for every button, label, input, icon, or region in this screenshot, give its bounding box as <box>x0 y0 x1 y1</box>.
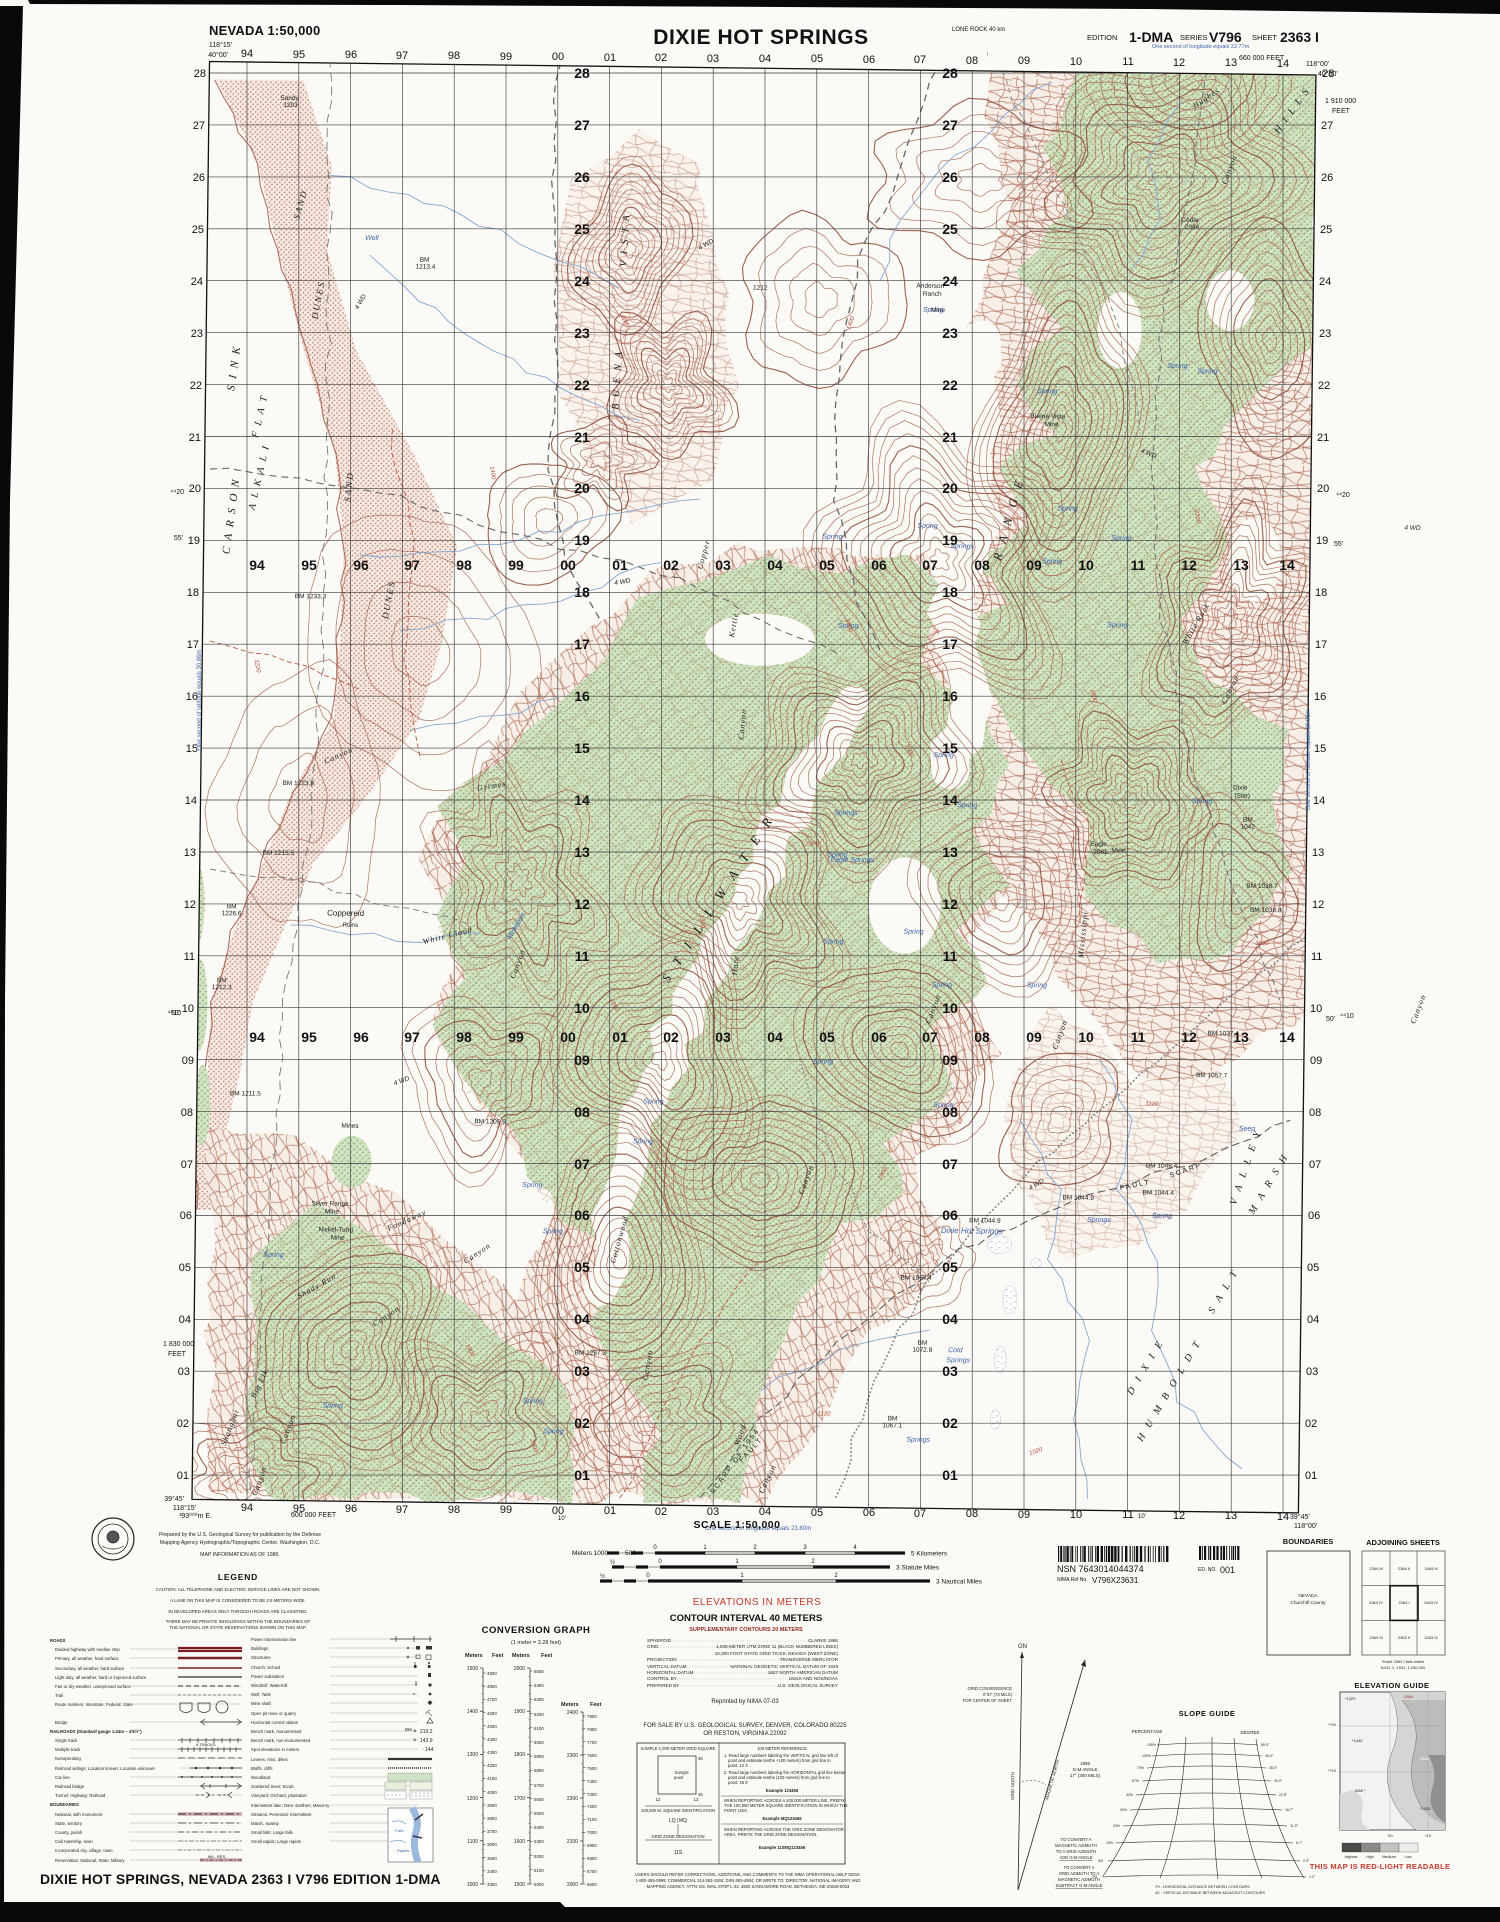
svg-text:Mine: Mine <box>931 307 946 314</box>
svg-text:13: 13 <box>184 847 196 859</box>
svg-text:7700: 7700 <box>587 1740 597 1745</box>
svg-text:Meters: Meters <box>465 1653 483 1659</box>
svg-text:Spring: Spring <box>932 982 952 989</box>
svg-text:14: 14 <box>574 792 590 808</box>
svg-text:Rapids: Rapids <box>397 1848 409 1853</box>
svg-text:02: 02 <box>177 1418 189 1430</box>
svg-text:04: 04 <box>179 1314 191 1326</box>
svg-text:Spring: Spring <box>1107 622 1127 629</box>
svg-text:97: 97 <box>404 1029 420 1045</box>
svg-text:⁴⁴20: ⁴⁴20 <box>170 489 184 496</box>
svg-text:HORIZONTAL DATUM: HORIZONTAL DATUM <box>647 1670 694 1675</box>
svg-text:18: 18 <box>187 587 199 599</box>
svg-text:One second of latitude equals: One second of latitude equals 30.86m <box>1306 709 1312 810</box>
svg-text:Multiple track: Multiple track <box>55 1747 81 1752</box>
svg-text:4000: 4000 <box>487 1790 497 1795</box>
svg-text:02: 02 <box>1305 1418 1317 1430</box>
svg-text:1213.4: 1213.4 <box>416 264 436 271</box>
svg-text:DIXIE HOT SPRINGS, NEVADA 23: DIXIE HOT SPRINGS, NEVADA 2363 I V796 ED… <box>40 1871 441 1887</box>
svg-text:01: 01 <box>942 1467 958 1483</box>
svg-text:01: 01 <box>574 1467 590 1483</box>
svg-text:20: 20 <box>189 483 201 495</box>
svg-text:BM 1297.3: BM 1297.3 <box>574 1350 606 1357</box>
svg-text:4400: 4400 <box>487 1737 497 1742</box>
svg-text:Spring: Spring <box>523 1398 543 1405</box>
svg-text:42%: 42% <box>1126 1793 1133 1797</box>
svg-text:09: 09 <box>1310 1055 1322 1067</box>
svg-text:Windmill; Watermill: Windmill; Watermill <box>251 1683 287 1688</box>
svg-text:22.8°: 22.8° <box>1279 1793 1288 1797</box>
svg-text:12: 12 <box>942 896 958 912</box>
svg-text:24: 24 <box>574 273 590 289</box>
svg-text:VERTICAL DATUM: VERTICAL DATUM <box>647 1664 687 1669</box>
svg-text:07: 07 <box>914 54 926 66</box>
svg-text:100,000 M. SQUARE IDENTIFICATI: 100,000 M. SQUARE IDENTIFICATION <box>641 1808 715 1813</box>
svg-text:04: 04 <box>759 1506 771 1518</box>
svg-text:03: 03 <box>1306 1366 1318 1378</box>
svg-text:2000: 2000 <box>514 1666 525 1672</box>
svg-text:SCALE 1:50,000: SCALE 1:50,000 <box>694 1519 781 1531</box>
svg-text:4 WD: 4 WD <box>1404 525 1421 532</box>
svg-text:NATIONAL GEODETIC VERTICAL DAT: NATIONAL GEODETIC VERTICAL DATUM OF 1929 <box>730 1664 838 1669</box>
svg-text:25: 25 <box>1320 224 1332 236</box>
svg-text:State, territory: State, territory <box>55 1821 83 1826</box>
svg-text:25: 25 <box>942 221 958 237</box>
svg-text:V796: V796 <box>1209 29 1242 45</box>
svg-text:7300: 7300 <box>587 1792 597 1797</box>
svg-text:PREPARED BY: PREPARED BY <box>647 1683 679 1688</box>
svg-text:3800: 3800 <box>487 1816 497 1821</box>
svg-text:MIL. RES.: MIL. RES. <box>208 1854 226 1859</box>
svg-text:Prepared by the U.S. Geologica: Prepared by the U.S. Geological Survey f… <box>159 1532 321 1538</box>
svg-text:LEGEND: LEGEND <box>218 1572 258 1582</box>
svg-text:2363 III: 2363 III <box>1369 1635 1382 1640</box>
svg-text:Low: Low <box>1405 1855 1412 1859</box>
svg-text:6600: 6600 <box>587 1882 597 1887</box>
svg-text:High: High <box>1366 1855 1374 1859</box>
svg-text:USERS SHOULD REFER CORRECTIONS: USERS SHOULD REFER CORRECTIONS, ADDITION… <box>635 1872 861 1877</box>
svg-text:3300: 3300 <box>487 1882 497 1887</box>
svg-text:6400: 6400 <box>534 1683 544 1688</box>
svg-text:RAILROADS (Standard gauge 1.44: RAILROADS (Standard gauge 1.44m – 4'8½") <box>50 1729 142 1734</box>
svg-text:7500: 7500 <box>587 1766 597 1771</box>
svg-text:7800: 7800 <box>587 1727 597 1732</box>
svg-text:Spring: Spring <box>823 939 843 946</box>
svg-text:10: 10 <box>1310 1003 1322 1015</box>
svg-text:13: 13 <box>574 844 590 860</box>
svg-text:Spring: Spring <box>1027 982 1047 989</box>
svg-text:Dixie Hot Springs: Dixie Hot Springs <box>941 1226 1003 1236</box>
svg-text:Coppereid: Coppereid <box>327 908 364 917</box>
svg-text:2364 II: 2364 II <box>1398 1566 1410 1571</box>
svg-text:0°67' (73 MILS): 0°67' (73 MILS) <box>983 1692 1013 1697</box>
svg-text:02: 02 <box>663 557 679 573</box>
svg-text:99: 99 <box>500 51 512 63</box>
svg-text:Springs: Springs <box>834 810 858 817</box>
svg-text:20: 20 <box>1317 483 1329 495</box>
svg-text:2384: 2384 <box>1404 1694 1414 1699</box>
svg-text:05: 05 <box>819 557 835 573</box>
svg-text:20: 20 <box>574 480 590 496</box>
svg-text:24: 24 <box>1319 276 1331 288</box>
svg-text:1400: 1400 <box>467 1709 478 1715</box>
svg-text:×: × <box>413 1738 417 1744</box>
svg-text:13: 13 <box>694 1797 699 1802</box>
svg-text:04: 04 <box>767 1029 783 1045</box>
svg-text:05: 05 <box>1307 1262 1319 1274</box>
svg-text:07: 07 <box>574 1156 590 1172</box>
svg-text:26: 26 <box>574 169 590 185</box>
svg-text:1,000-METER UTM ZONE 11 (BLACK: 1,000-METER UTM ZONE 11 (BLACK NUMBERED … <box>716 1644 838 1649</box>
svg-text:Spring: Spring <box>822 534 842 541</box>
svg-text:Well: Well <box>365 235 379 242</box>
svg-text:01: 01 <box>612 557 628 573</box>
svg-text:BM 1223.9: BM 1223.9 <box>282 780 314 787</box>
svg-text:02: 02 <box>663 1029 679 1045</box>
svg-text:11S: 11S <box>674 1850 683 1856</box>
svg-text:22: 22 <box>942 377 958 393</box>
svg-text:94: 94 <box>249 1029 265 1045</box>
svg-text:95: 95 <box>293 49 305 61</box>
svg-text:09: 09 <box>1018 1509 1030 1521</box>
svg-text:14: 14 <box>185 795 197 807</box>
svg-text:Mine: Mine <box>1111 847 1126 854</box>
svg-text:4800: 4800 <box>487 1684 497 1689</box>
svg-text:Buildings: Buildings <box>251 1646 268 1651</box>
svg-text:⁴⁴20: ⁴⁴20 <box>1328 1722 1337 1727</box>
svg-text:28: 28 <box>942 65 958 81</box>
svg-text:Car line: Car line <box>55 1775 70 1780</box>
svg-text:21: 21 <box>942 429 958 445</box>
svg-text:26: 26 <box>193 172 205 184</box>
svg-text:1203: 1203 <box>283 102 298 109</box>
svg-text:BM 1067.4: BM 1067.4 <box>900 1275 932 1282</box>
svg-text:TO CONVERT A: TO CONVERT A <box>1061 1837 1092 1842</box>
svg-text:Spring: Spring <box>1192 798 1212 805</box>
svg-text:Divided highway with median st: Divided highway with median strip <box>55 1647 120 1652</box>
svg-text:×: × <box>413 1729 417 1735</box>
svg-text:MAP INFORMATION AS OF 1980.: MAP INFORMATION AS OF 1980. <box>200 1552 280 1558</box>
svg-text:118°15': 118°15' <box>209 41 232 49</box>
svg-text:94: 94 <box>241 1502 253 1514</box>
svg-text:14: 14 <box>1279 557 1295 573</box>
svg-text:Mine: Mine <box>331 1235 346 1242</box>
svg-text:03: 03 <box>715 557 731 573</box>
svg-text:Cold: Cold <box>948 1347 964 1354</box>
svg-text:DEGREE: DEGREE <box>1240 1730 1259 1735</box>
svg-text:Marsh, swamp: Marsh, swamp <box>251 1821 280 1826</box>
svg-text:FEET: FEET <box>168 1351 187 1358</box>
svg-text:4200: 4200 <box>487 1763 497 1768</box>
svg-text:2453 III: 2453 III <box>1424 1635 1437 1640</box>
svg-text:07: 07 <box>942 1156 958 1172</box>
svg-text:96: 96 <box>353 557 369 573</box>
svg-text:145%: 145% <box>1147 1743 1156 1747</box>
svg-text:14: 14 <box>1313 795 1325 807</box>
svg-text:Reservation: National; State;: Reservation: National; State; Military <box>55 1858 125 1863</box>
svg-text:DIXIE HOT SPRINGS: DIXIE HOT SPRINGS <box>653 26 869 49</box>
svg-text:5%: 5% <box>1098 1859 1103 1863</box>
svg-text:10: 10 <box>1070 1509 1082 1521</box>
svg-text:5300: 5300 <box>534 1839 544 1844</box>
svg-text:BOUNDARIES: BOUNDARIES <box>1283 1537 1333 1546</box>
svg-text:Sheet 2363 I falls within: Sheet 2363 I falls within <box>1382 1659 1424 1664</box>
svg-text:BM: BM <box>405 1727 412 1732</box>
svg-text:28: 28 <box>574 65 590 81</box>
svg-text:SUPPLEMENTARY CONTOURS 20 METE: SUPPLEMENTARY CONTOURS 20 METERS <box>689 1627 803 1633</box>
svg-text:05: 05 <box>811 53 823 65</box>
svg-text:NJ/11 1, 1931, 1:250,000: NJ/11 1, 1931, 1:250,000 <box>1381 1665 1426 1670</box>
svg-text:14: 14 <box>1279 1029 1295 1045</box>
svg-text:17: 17 <box>1315 639 1327 651</box>
svg-text:70%: 70% <box>1137 1766 1144 1770</box>
svg-text:Dixie: Dixie <box>1233 785 1248 792</box>
svg-text:13: 13 <box>1233 557 1249 573</box>
svg-text:18: 18 <box>942 584 958 600</box>
svg-text:4C - VERTICAL DISTANCE BETWEEN: 4C - VERTICAL DISTANCE BETWEEN ADJACENT … <box>1155 1891 1265 1895</box>
svg-text:4700: 4700 <box>487 1697 497 1702</box>
svg-text:Spring: Spring <box>1167 363 1187 370</box>
svg-text:12: 12 <box>1173 1510 1185 1522</box>
svg-text:AREA, PREFIX THE GRID ZONE DES: AREA, PREFIX THE GRID ZONE DESIGNATION. <box>724 1832 818 1837</box>
svg-text:CONTROL BY: CONTROL BY <box>647 1676 677 1681</box>
svg-text:18: 18 <box>574 584 590 600</box>
svg-text:100 METER REFERENCE: 100 METER REFERENCE <box>757 1746 807 1751</box>
svg-text:*1323: *1323 <box>1345 1696 1356 1701</box>
svg-text:04: 04 <box>574 1311 590 1327</box>
svg-text:01: 01 <box>177 1470 189 1482</box>
svg-text:23: 23 <box>942 325 958 341</box>
svg-text:Mine: Mine <box>1045 421 1060 428</box>
svg-text:2094: 2094 <box>1185 224 1200 231</box>
svg-text:04: 04 <box>759 53 771 65</box>
svg-text:30%: 30% <box>1120 1808 1127 1812</box>
svg-text:08: 08 <box>974 1029 990 1045</box>
svg-text:BM 1044.9: BM 1044.9 <box>969 1217 1001 1224</box>
svg-text:08: 08 <box>974 557 990 573</box>
svg-text:4100: 4100 <box>487 1776 497 1781</box>
svg-text:Falls: Falls <box>395 1828 403 1833</box>
svg-text:County, parish: County, parish <box>55 1830 83 1835</box>
svg-text:ADJOINING SHEETS: ADJOINING SHEETS <box>1366 1538 1440 1547</box>
svg-text:CONVERSION GRAPH: CONVERSION GRAPH <box>482 1625 591 1636</box>
svg-text:23: 23 <box>191 328 203 340</box>
svg-text:1100: 1100 <box>467 1839 478 1845</box>
svg-text:5600: 5600 <box>534 1797 544 1802</box>
svg-text:10,000 FOOT STATE GRID TICKS,: 10,000 FOOT STATE GRID TICKS, NEVADA (WE… <box>715 1651 839 1656</box>
svg-text:27: 27 <box>193 120 205 132</box>
svg-text:BM 1057.7: BM 1057.7 <box>1196 1072 1228 1079</box>
svg-text:SERIES: SERIES <box>1180 33 1208 42</box>
svg-text:Small falls; Large falls: Small falls; Large falls <box>251 1830 293 1835</box>
svg-text:23: 23 <box>1319 328 1331 340</box>
svg-text:ROADS: ROADS <box>50 1638 66 1643</box>
svg-text:ED. NO.: ED. NO. <box>1198 1567 1217 1573</box>
svg-text:11: 11 <box>575 948 590 964</box>
svg-text:22: 22 <box>190 380 202 392</box>
svg-text:2100: 2100 <box>567 1839 578 1845</box>
svg-text:03: 03 <box>707 53 719 65</box>
svg-text:2363 I: 2363 I <box>1398 1600 1409 1605</box>
svg-text:04: 04 <box>942 1311 958 1327</box>
svg-text:Secondary, all weather, hard s: Secondary, all weather, hard surface <box>55 1666 125 1671</box>
svg-text:Nonoperating: Nonoperating <box>55 1756 81 1761</box>
svg-text:11.3°: 11.3° <box>1290 1824 1299 1828</box>
svg-text:06: 06 <box>574 1207 590 1223</box>
svg-text:97: 97 <box>404 557 420 573</box>
svg-text:13: 13 <box>1225 1510 1237 1522</box>
svg-text:Meters: Meters <box>561 1702 579 1708</box>
svg-text:Example 11SMQ123456: Example 11SMQ123456 <box>759 1845 806 1850</box>
svg-text:21: 21 <box>1317 432 1329 444</box>
svg-text:01: 01 <box>1305 1470 1317 1482</box>
svg-text:24: 24 <box>191 276 203 288</box>
svg-text:Nickel-Tung: Nickel-Tung <box>318 1226 353 1233</box>
svg-text:Spring: Spring <box>522 1182 542 1189</box>
svg-text:06: 06 <box>871 557 887 573</box>
svg-text:Spring: Spring <box>643 1098 663 1105</box>
svg-text:15: 15 <box>942 740 958 756</box>
svg-text:1800: 1800 <box>514 1752 525 1758</box>
svg-text:3700: 3700 <box>487 1829 497 1834</box>
svg-text:13: 13 <box>1225 57 1237 69</box>
svg-text:22: 22 <box>1318 380 1330 392</box>
svg-text:Spring: Spring <box>957 802 977 809</box>
svg-text:USGS AND NOS/NOAA: USGS AND NOS/NOAA <box>789 1676 839 1681</box>
svg-text:94: 94 <box>249 557 265 573</box>
svg-text:01: 01 <box>604 52 616 64</box>
svg-text:PROJECTION: PROJECTION <box>647 1657 677 1662</box>
svg-text:5100: 5100 <box>534 1868 544 1873</box>
svg-text:Example MQ123456: Example MQ123456 <box>762 1816 802 1821</box>
svg-text:2081: 2081 <box>1093 849 1108 856</box>
svg-text:35.0°: 35.0° <box>1269 1766 1278 1770</box>
svg-text:25: 25 <box>192 224 204 236</box>
svg-text:16: 16 <box>1314 691 1326 703</box>
svg-text:96: 96 <box>345 1503 357 1515</box>
svg-text:1.1°: 1.1° <box>1309 1875 1316 1879</box>
svg-text:2300: 2300 <box>567 1753 578 1759</box>
svg-text:00: 00 <box>560 557 576 573</box>
svg-text:28: 28 <box>194 68 206 80</box>
svg-text:11: 11 <box>184 951 195 963</box>
svg-text:02: 02 <box>942 1415 958 1431</box>
svg-text:1700: 1700 <box>514 1796 525 1802</box>
svg-text:17° (300 MILS): 17° (300 MILS) <box>1070 1773 1101 1778</box>
svg-text:CONTOUR INTERVAL 40 METERS: CONTOUR INTERVAL 40 METERS <box>670 1613 822 1624</box>
svg-text:25: 25 <box>574 221 590 237</box>
svg-text:2364 III: 2364 III <box>1369 1566 1382 1571</box>
svg-text:6800: 6800 <box>587 1856 597 1861</box>
svg-text:point: 12 3: point: 12 3 <box>728 1763 748 1768</box>
svg-text:7H - HORIZONTAL DISTANCE BETWE: 7H - HORIZONTAL DISTANCE BETWEEN CONTOUR… <box>1155 1885 1250 1889</box>
svg-text:6000: 6000 <box>534 1740 544 1745</box>
svg-text:Meters: Meters <box>512 1653 530 1659</box>
svg-text:97: 97 <box>396 1504 408 1516</box>
svg-text:12: 12 <box>656 1797 661 1802</box>
svg-text:FOR CENTER OF SHEET: FOR CENTER OF SHEET <box>963 1698 1013 1703</box>
svg-text:09: 09 <box>574 1052 590 1068</box>
svg-text:GRID CONVERGENCE: GRID CONVERGENCE <box>968 1686 1013 1691</box>
svg-text:GRID: GRID <box>647 1644 659 1649</box>
svg-text:BM 1038.8: BM 1038.8 <box>1250 907 1282 914</box>
svg-text:1-DMA: 1-DMA <box>1129 29 1173 45</box>
svg-text:3900: 3900 <box>487 1803 497 1808</box>
svg-text:Springs: Springs <box>906 1437 930 1444</box>
svg-text:02: 02 <box>574 1415 590 1431</box>
svg-text:LONE ROCK 40 km: LONE ROCK 40 km <box>952 27 1005 33</box>
svg-text:05: 05 <box>179 1262 191 1274</box>
svg-text:³93⁰⁰⁰m E.: ³93⁰⁰⁰m E. <box>179 1512 212 1520</box>
svg-text:7000: 7000 <box>587 1830 597 1835</box>
svg-text:Open pit mine or quarry: Open pit mine or quarry <box>251 1711 297 1716</box>
svg-text:Eagle: Eagle <box>1090 841 1107 848</box>
svg-text:3400: 3400 <box>487 1869 497 1874</box>
svg-text:Route markers: Interstate; Fed: Route markers: Interstate; Federal; Stat… <box>55 1702 133 1707</box>
svg-text:45: 45 <box>698 1792 703 1797</box>
svg-text:Scattered trees; Scrub: Scattered trees; Scrub <box>251 1784 294 1789</box>
svg-text:46: 46 <box>698 1756 703 1761</box>
svg-text:Tunnel: Highway; Railroad: Tunnel: Highway; Railroad <box>55 1793 106 1798</box>
svg-text:97: 97 <box>396 50 408 62</box>
svg-text:08: 08 <box>574 1104 590 1120</box>
svg-text:143.9: 143.9 <box>420 1738 433 1744</box>
svg-text:(Site): (Site) <box>1234 793 1250 800</box>
svg-text:2000: 2000 <box>567 1882 578 1888</box>
svg-text:PERCENTAGE: PERCENTAGE <box>1132 1729 1163 1734</box>
svg-text:03: 03 <box>178 1366 190 1378</box>
svg-text:1840: 1840 <box>1420 1756 1430 1761</box>
svg-text:BM 1233.3: BM 1233.3 <box>295 593 327 600</box>
svg-text:Bench mark, non-monumented: Bench mark, non-monumented <box>251 1738 311 1743</box>
svg-text:⁴⁴10: ⁴⁴10 <box>1328 1768 1337 1773</box>
svg-text:Civil township, town: Civil township, town <box>55 1839 93 1844</box>
svg-text:Mine shaft: Mine shaft <box>251 1701 272 1706</box>
svg-text:SAMPLE 1,000 METER GRID SQUARE: SAMPLE 1,000 METER GRID SQUARE <box>641 1746 716 1751</box>
svg-text:95: 95 <box>301 557 317 573</box>
svg-text:*10: *10 <box>1425 1833 1432 1838</box>
svg-text:12: 12 <box>1173 57 1185 69</box>
svg-text:Levees, rims, dikes: Levees, rims, dikes <box>251 1757 288 1762</box>
svg-text:96: 96 <box>353 1029 369 1045</box>
svg-text:118°00': 118°00' <box>1294 1522 1317 1530</box>
svg-text:57%: 57% <box>1132 1779 1139 1783</box>
svg-text:Spring: Spring <box>1197 368 1217 375</box>
svg-text:16.7°: 16.7° <box>1285 1808 1294 1812</box>
svg-text:SLOPE GUIDE: SLOPE GUIDE <box>1179 1709 1236 1718</box>
svg-text:1927 NORTH AMERICAN DATUM: 1927 NORTH AMERICAN DATUM <box>768 1670 838 1675</box>
svg-text:09: 09 <box>942 1052 958 1068</box>
svg-text:08: 08 <box>966 55 978 67</box>
svg-text:4900: 4900 <box>487 1671 497 1676</box>
svg-text:Spring: Spring <box>1037 388 1057 395</box>
svg-text:11: 11 <box>943 948 958 964</box>
svg-text:Structures: Structures <box>251 1655 271 1660</box>
svg-text:19: 19 <box>188 535 200 547</box>
svg-text:50': 50' <box>1326 1016 1335 1023</box>
svg-text:09: 09 <box>1026 1029 1042 1045</box>
svg-text:Vineyard; Orchard, plantation: Vineyard; Orchard, plantation <box>251 1793 307 1798</box>
svg-text:10: 10 <box>942 1000 958 1016</box>
svg-text:07: 07 <box>922 557 938 573</box>
svg-text:12: 12 <box>1181 557 1197 573</box>
svg-text:FEET: FEET <box>1332 108 1351 115</box>
svg-text:55': 55' <box>174 535 183 542</box>
svg-text:Meters 1000: Meters 1000 <box>572 1550 609 1557</box>
svg-text:13: 13 <box>1233 1029 1249 1045</box>
svg-text:98: 98 <box>456 1029 472 1045</box>
svg-text:14: 14 <box>1277 1511 1289 1523</box>
